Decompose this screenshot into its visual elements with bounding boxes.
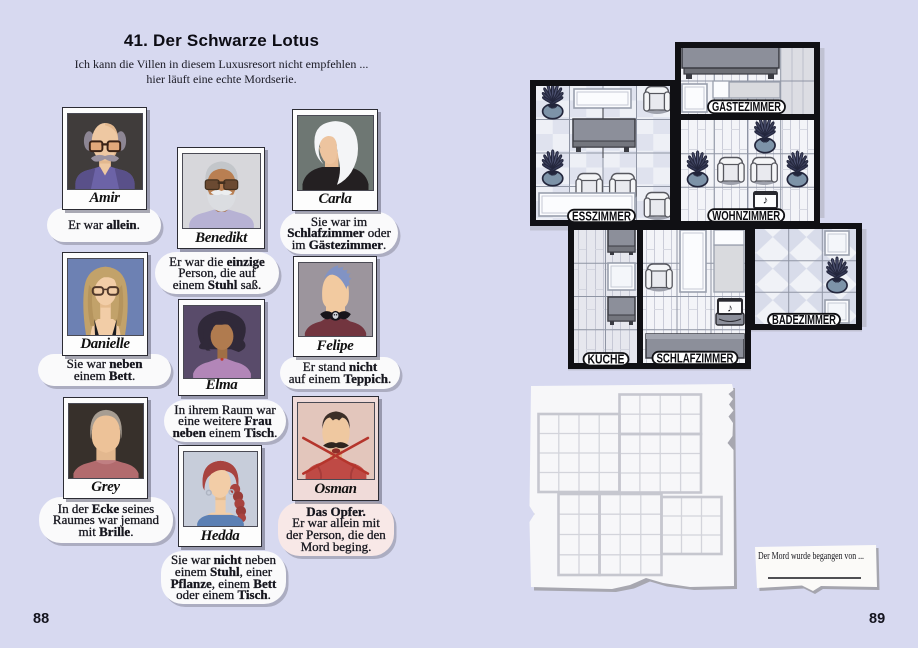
svg-text:Der Mord wurde begangen von ..: Der Mord wurde begangen von ... (758, 551, 864, 562)
svg-text:WOHNZIMMER: WOHNZIMMER (712, 209, 780, 223)
svg-text:GÄSTEZIMMER: GÄSTEZIMMER (712, 99, 781, 114)
svg-text:BADEZIMMER: BADEZIMMER (772, 313, 836, 327)
svg-text:♪: ♪ (727, 303, 733, 315)
svg-text:ESSZIMMER: ESSZIMMER (572, 209, 631, 223)
svg-text:SCHLAFZIMMER: SCHLAFZIMMER (657, 351, 734, 365)
svg-text:♪: ♪ (763, 195, 769, 207)
svg-text:KÜCHE: KÜCHE (588, 352, 625, 367)
